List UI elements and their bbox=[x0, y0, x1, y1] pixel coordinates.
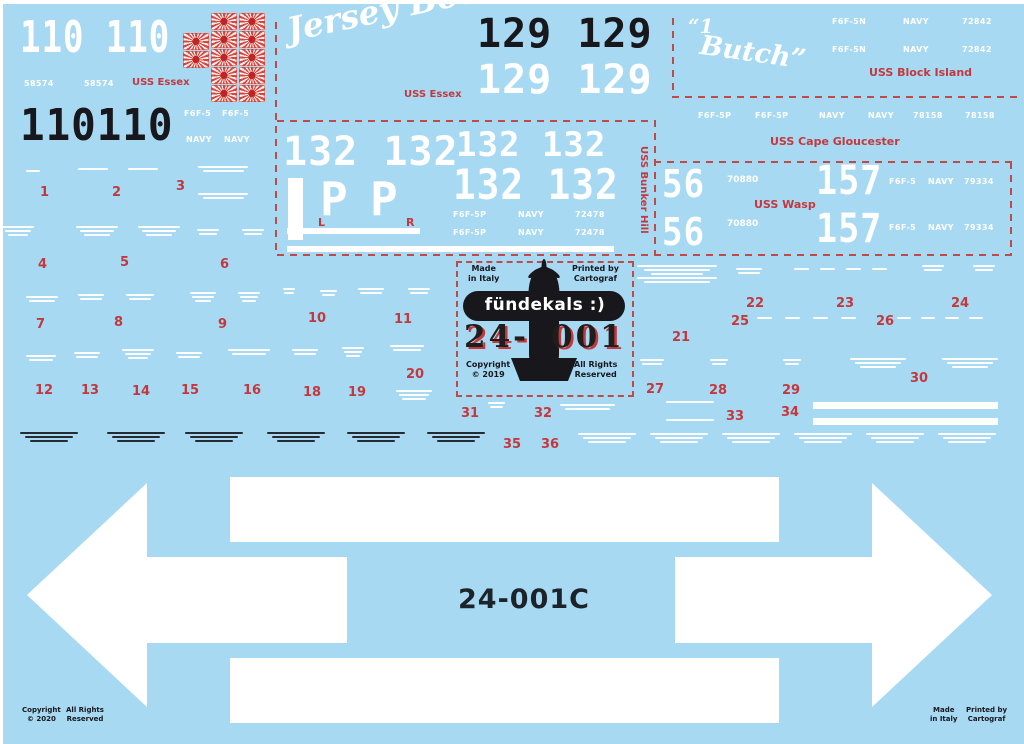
stencil-number-36: 36 bbox=[541, 438, 559, 451]
victory-flag bbox=[183, 33, 209, 50]
white-stripe-top bbox=[230, 477, 779, 542]
side-number-110-black: 110110 bbox=[20, 104, 173, 148]
white-stripe bbox=[813, 418, 998, 425]
decal-sheet: 110 110 110110 58574 58574 USS Essex F6F… bbox=[0, 0, 1024, 744]
micro-stencil-block bbox=[736, 268, 762, 276]
type-label: F6F-5P bbox=[755, 112, 788, 120]
micro-stencil-block bbox=[26, 170, 40, 174]
dashed-divider bbox=[1010, 162, 1012, 256]
type-label: F6F-5 bbox=[889, 178, 916, 186]
micro-stencil-block bbox=[2, 226, 34, 238]
victory-flag bbox=[239, 67, 265, 84]
stencil-number-6: 6 bbox=[220, 258, 229, 271]
navy-label: NAVY bbox=[518, 229, 544, 237]
stencil-number-13: 13 bbox=[81, 384, 99, 397]
micro-stencil-block bbox=[722, 433, 780, 445]
set-code-24: 24- bbox=[464, 322, 529, 353]
buno-58574: 58574 bbox=[24, 80, 54, 88]
micro-stencil-block bbox=[785, 317, 800, 321]
micro-stencil-block bbox=[973, 265, 995, 273]
micro-stencil-block bbox=[820, 268, 835, 272]
rights-reserved-label: All Rights Reserved bbox=[574, 360, 617, 380]
navy-label: NAVY bbox=[819, 112, 845, 120]
type-label: F6F-5P bbox=[453, 211, 486, 219]
side-number-110-white: 110 110 bbox=[20, 16, 170, 60]
micro-stencil-block bbox=[390, 345, 424, 353]
micro-stencil-block bbox=[813, 317, 828, 321]
micro-stencil-block bbox=[560, 404, 615, 412]
micro-stencil-block bbox=[128, 168, 158, 172]
left-arrow-head bbox=[27, 483, 147, 707]
made-in-italy-label: Made in Italy bbox=[468, 264, 499, 284]
micro-stencil-block bbox=[358, 288, 384, 296]
stencil-number-3: 3 bbox=[176, 180, 185, 193]
stencil-number-14: 14 bbox=[132, 385, 150, 398]
navy-label: NAVY bbox=[186, 136, 212, 144]
stencil-number-4: 4 bbox=[38, 258, 47, 271]
micro-stencil-block bbox=[347, 432, 405, 444]
micro-stencil-block bbox=[794, 433, 852, 445]
micro-stencil-block bbox=[198, 166, 248, 174]
ship-label-wasp: USS Wasp bbox=[754, 199, 816, 210]
stencil-number-28: 28 bbox=[709, 384, 727, 397]
tail-letter-p: P bbox=[370, 176, 399, 222]
footer-made-in-italy: Made in Italy bbox=[930, 706, 957, 724]
micro-stencil-block bbox=[122, 349, 154, 361]
victory-flag bbox=[239, 49, 265, 66]
navy-label: NAVY bbox=[903, 46, 929, 54]
set-code-001: 001 bbox=[551, 322, 625, 353]
victory-flag bbox=[239, 31, 265, 48]
victory-flag bbox=[239, 13, 265, 30]
micro-stencil-block bbox=[640, 359, 664, 367]
side-number-56: 56 bbox=[662, 165, 705, 203]
micro-stencil-block bbox=[185, 432, 243, 444]
micro-stencil-block bbox=[938, 433, 996, 445]
side-number-132: 132 132 bbox=[283, 132, 459, 172]
side-number-129-black: 129 129 bbox=[477, 14, 653, 54]
micro-stencil-block bbox=[342, 347, 364, 359]
micro-stencil-block bbox=[126, 294, 154, 302]
stencil-number-22: 22 bbox=[746, 297, 764, 310]
micro-stencil-block bbox=[238, 292, 260, 304]
stencil-number-12: 12 bbox=[35, 384, 53, 397]
victory-flag bbox=[211, 31, 237, 48]
stencil-number-16: 16 bbox=[243, 384, 261, 397]
stencil-number-7: 7 bbox=[36, 318, 45, 331]
buno-72842: 72842 bbox=[962, 46, 992, 54]
copyright-2019-label: Copyright © 2019 bbox=[466, 360, 510, 380]
micro-stencil-block bbox=[666, 419, 714, 423]
footer-rights: All Rights Reserved bbox=[66, 706, 104, 724]
side-number-157: 157 bbox=[816, 161, 882, 201]
stencil-number-20: 20 bbox=[406, 368, 424, 381]
white-stripe bbox=[287, 246, 614, 252]
stencil-number-11: 11 bbox=[394, 313, 412, 326]
stencil-number-27: 27 bbox=[646, 383, 664, 396]
stencil-number-19: 19 bbox=[348, 386, 366, 399]
buno-72478: 72478 bbox=[575, 229, 605, 237]
micro-stencil-block bbox=[76, 226, 118, 238]
stencil-number-30: 30 bbox=[910, 372, 928, 385]
stencil-number-26: 26 bbox=[876, 315, 894, 328]
stencil-number-21: 21 bbox=[672, 331, 690, 344]
micro-stencil-block bbox=[78, 168, 108, 172]
right-arrow-tail bbox=[675, 557, 872, 643]
buno-72478: 72478 bbox=[575, 211, 605, 219]
micro-stencil-block bbox=[897, 317, 911, 321]
printed-by-label: Printed by Cartograf bbox=[572, 264, 619, 284]
side-number-132: 132 132 bbox=[453, 164, 619, 206]
micro-stencil-block bbox=[488, 402, 505, 410]
micro-stencil-block bbox=[20, 432, 78, 444]
stencil-number-10: 10 bbox=[308, 312, 326, 325]
stencil-number-18: 18 bbox=[303, 386, 321, 399]
micro-stencil-block bbox=[396, 390, 432, 402]
micro-stencil-block bbox=[578, 433, 636, 445]
dashed-divider bbox=[277, 120, 656, 122]
type-label: F6F-5P bbox=[698, 112, 731, 120]
sheet-edge-left bbox=[0, 0, 3, 744]
micro-stencil-block bbox=[783, 359, 801, 367]
micro-stencil-block bbox=[872, 268, 887, 272]
micro-stencil-block bbox=[866, 433, 924, 445]
victory-flag bbox=[211, 49, 237, 66]
navy-label: NAVY bbox=[928, 224, 954, 232]
stencil-number-9: 9 bbox=[218, 318, 227, 331]
side-number-56: 56 bbox=[662, 213, 705, 251]
micro-stencil-block bbox=[283, 288, 295, 296]
dashed-divider bbox=[672, 18, 674, 98]
stencil-number-33: 33 bbox=[726, 410, 744, 423]
stencil-number-15: 15 bbox=[181, 384, 199, 397]
stencil-number-23: 23 bbox=[836, 297, 854, 310]
stencil-number-32: 32 bbox=[534, 407, 552, 420]
type-label: F6F-5N bbox=[832, 18, 866, 26]
micro-stencil-block bbox=[427, 432, 485, 444]
dashed-divider bbox=[277, 254, 1012, 256]
stencil-number-24: 24 bbox=[951, 297, 969, 310]
micro-stencil-block bbox=[78, 294, 104, 302]
micro-stencil-block bbox=[242, 229, 264, 237]
buno-70880: 70880 bbox=[727, 176, 758, 185]
victory-flag bbox=[211, 85, 237, 102]
victory-flag bbox=[239, 85, 265, 102]
buno-70880: 70880 bbox=[727, 220, 758, 229]
micro-stencil-block bbox=[922, 265, 944, 273]
footer-copyright: Copyright © 2020 bbox=[22, 706, 61, 724]
micro-stencil-block bbox=[945, 317, 959, 321]
white-stripe bbox=[813, 402, 998, 409]
micro-stencil-block bbox=[292, 349, 318, 357]
buno-78158: 78158 bbox=[913, 112, 943, 120]
navy-label: NAVY bbox=[518, 211, 544, 219]
navy-label: NAVY bbox=[868, 112, 894, 120]
micro-stencil-block bbox=[969, 317, 983, 321]
white-stripe bbox=[287, 228, 420, 234]
stencil-number-29: 29 bbox=[782, 384, 800, 397]
position-l-label: L bbox=[318, 217, 325, 228]
stencil-number-25: 25 bbox=[731, 315, 749, 328]
micro-stencil-block bbox=[176, 352, 202, 360]
micro-stencil-block bbox=[228, 349, 270, 357]
type-label: F6F-5P bbox=[453, 229, 486, 237]
micro-stencil-block bbox=[710, 359, 728, 367]
micro-stencil-block bbox=[841, 317, 856, 321]
micro-stencil-block bbox=[267, 432, 325, 444]
micro-stencil-block bbox=[666, 401, 714, 405]
micro-stencil-block bbox=[846, 268, 861, 272]
nickname-butch: Butch” bbox=[698, 32, 807, 74]
left-arrow-tail bbox=[147, 557, 347, 643]
micro-stencil-block bbox=[107, 432, 165, 444]
micro-stencil-block bbox=[637, 265, 717, 285]
micro-stencil-block bbox=[320, 290, 337, 298]
buno-78158: 78158 bbox=[965, 112, 995, 120]
micro-stencil-block bbox=[26, 296, 58, 304]
navy-label: NAVY bbox=[903, 18, 929, 26]
micro-stencil-block bbox=[650, 433, 708, 445]
footer-printed-by: Printed by Cartograf bbox=[966, 706, 1007, 724]
side-number-157: 157 bbox=[816, 209, 882, 249]
stencil-number-35: 35 bbox=[503, 438, 521, 451]
victory-flag bbox=[211, 13, 237, 30]
stencil-number-2: 2 bbox=[112, 186, 121, 199]
navy-label: NAVY bbox=[928, 178, 954, 186]
micro-stencil-block bbox=[190, 292, 216, 304]
ship-label-block-island: USS Block Island bbox=[869, 67, 972, 78]
navy-label: NAVY bbox=[224, 136, 250, 144]
micro-stencil-block bbox=[942, 358, 998, 370]
brand-band: fündekals :) bbox=[468, 292, 622, 319]
micro-stencil-block bbox=[794, 268, 809, 272]
buno-79334: 79334 bbox=[964, 178, 994, 186]
white-stripe-bottom bbox=[230, 658, 779, 723]
type-label: F6F-5N bbox=[832, 46, 866, 54]
stencil-number-8: 8 bbox=[114, 316, 123, 329]
type-label: F6F-5 bbox=[184, 110, 211, 118]
victory-flag bbox=[211, 67, 237, 84]
micro-stencil-block bbox=[850, 358, 906, 370]
type-label: F6F-5 bbox=[889, 224, 916, 232]
victory-flag bbox=[183, 51, 209, 68]
buno-79334: 79334 bbox=[964, 224, 994, 232]
ship-label-essex: USS Essex bbox=[132, 78, 190, 88]
type-label: F6F-5 bbox=[222, 110, 249, 118]
micro-stencil-block bbox=[921, 317, 935, 321]
buno-58574: 58574 bbox=[84, 80, 114, 88]
stencil-number-34: 34 bbox=[781, 406, 799, 419]
buno-72842: 72842 bbox=[962, 18, 992, 26]
stencil-number-1: 1 bbox=[40, 186, 49, 199]
side-number-129-white: 129 129 bbox=[477, 60, 653, 100]
micro-stencil-block bbox=[138, 226, 180, 238]
micro-stencil-block bbox=[757, 317, 772, 321]
ship-label-essex-129: USS Essex bbox=[404, 90, 462, 100]
micro-stencil-block bbox=[197, 229, 219, 237]
brand-logo-text: fündekals :) bbox=[485, 297, 606, 314]
stencil-number-31: 31 bbox=[461, 407, 479, 420]
micro-stencil-block bbox=[198, 193, 248, 201]
dashed-divider bbox=[654, 120, 656, 256]
ship-label-cape-gloucester: USS Cape Gloucester bbox=[770, 136, 900, 147]
micro-stencil-block bbox=[26, 355, 56, 363]
micro-stencil-block bbox=[408, 288, 430, 296]
sheet-code-label: 24-001C bbox=[458, 586, 590, 613]
right-arrow-head bbox=[872, 483, 992, 707]
dashed-divider bbox=[672, 96, 1017, 98]
dashed-divider bbox=[275, 22, 277, 256]
stencil-number-5: 5 bbox=[120, 256, 129, 269]
ship-label-bunker-hill: USS Bunker Hill bbox=[638, 146, 648, 246]
micro-stencil-block bbox=[74, 352, 100, 360]
side-number-132: 132 132 bbox=[456, 128, 606, 162]
position-r-label: R bbox=[406, 217, 414, 228]
